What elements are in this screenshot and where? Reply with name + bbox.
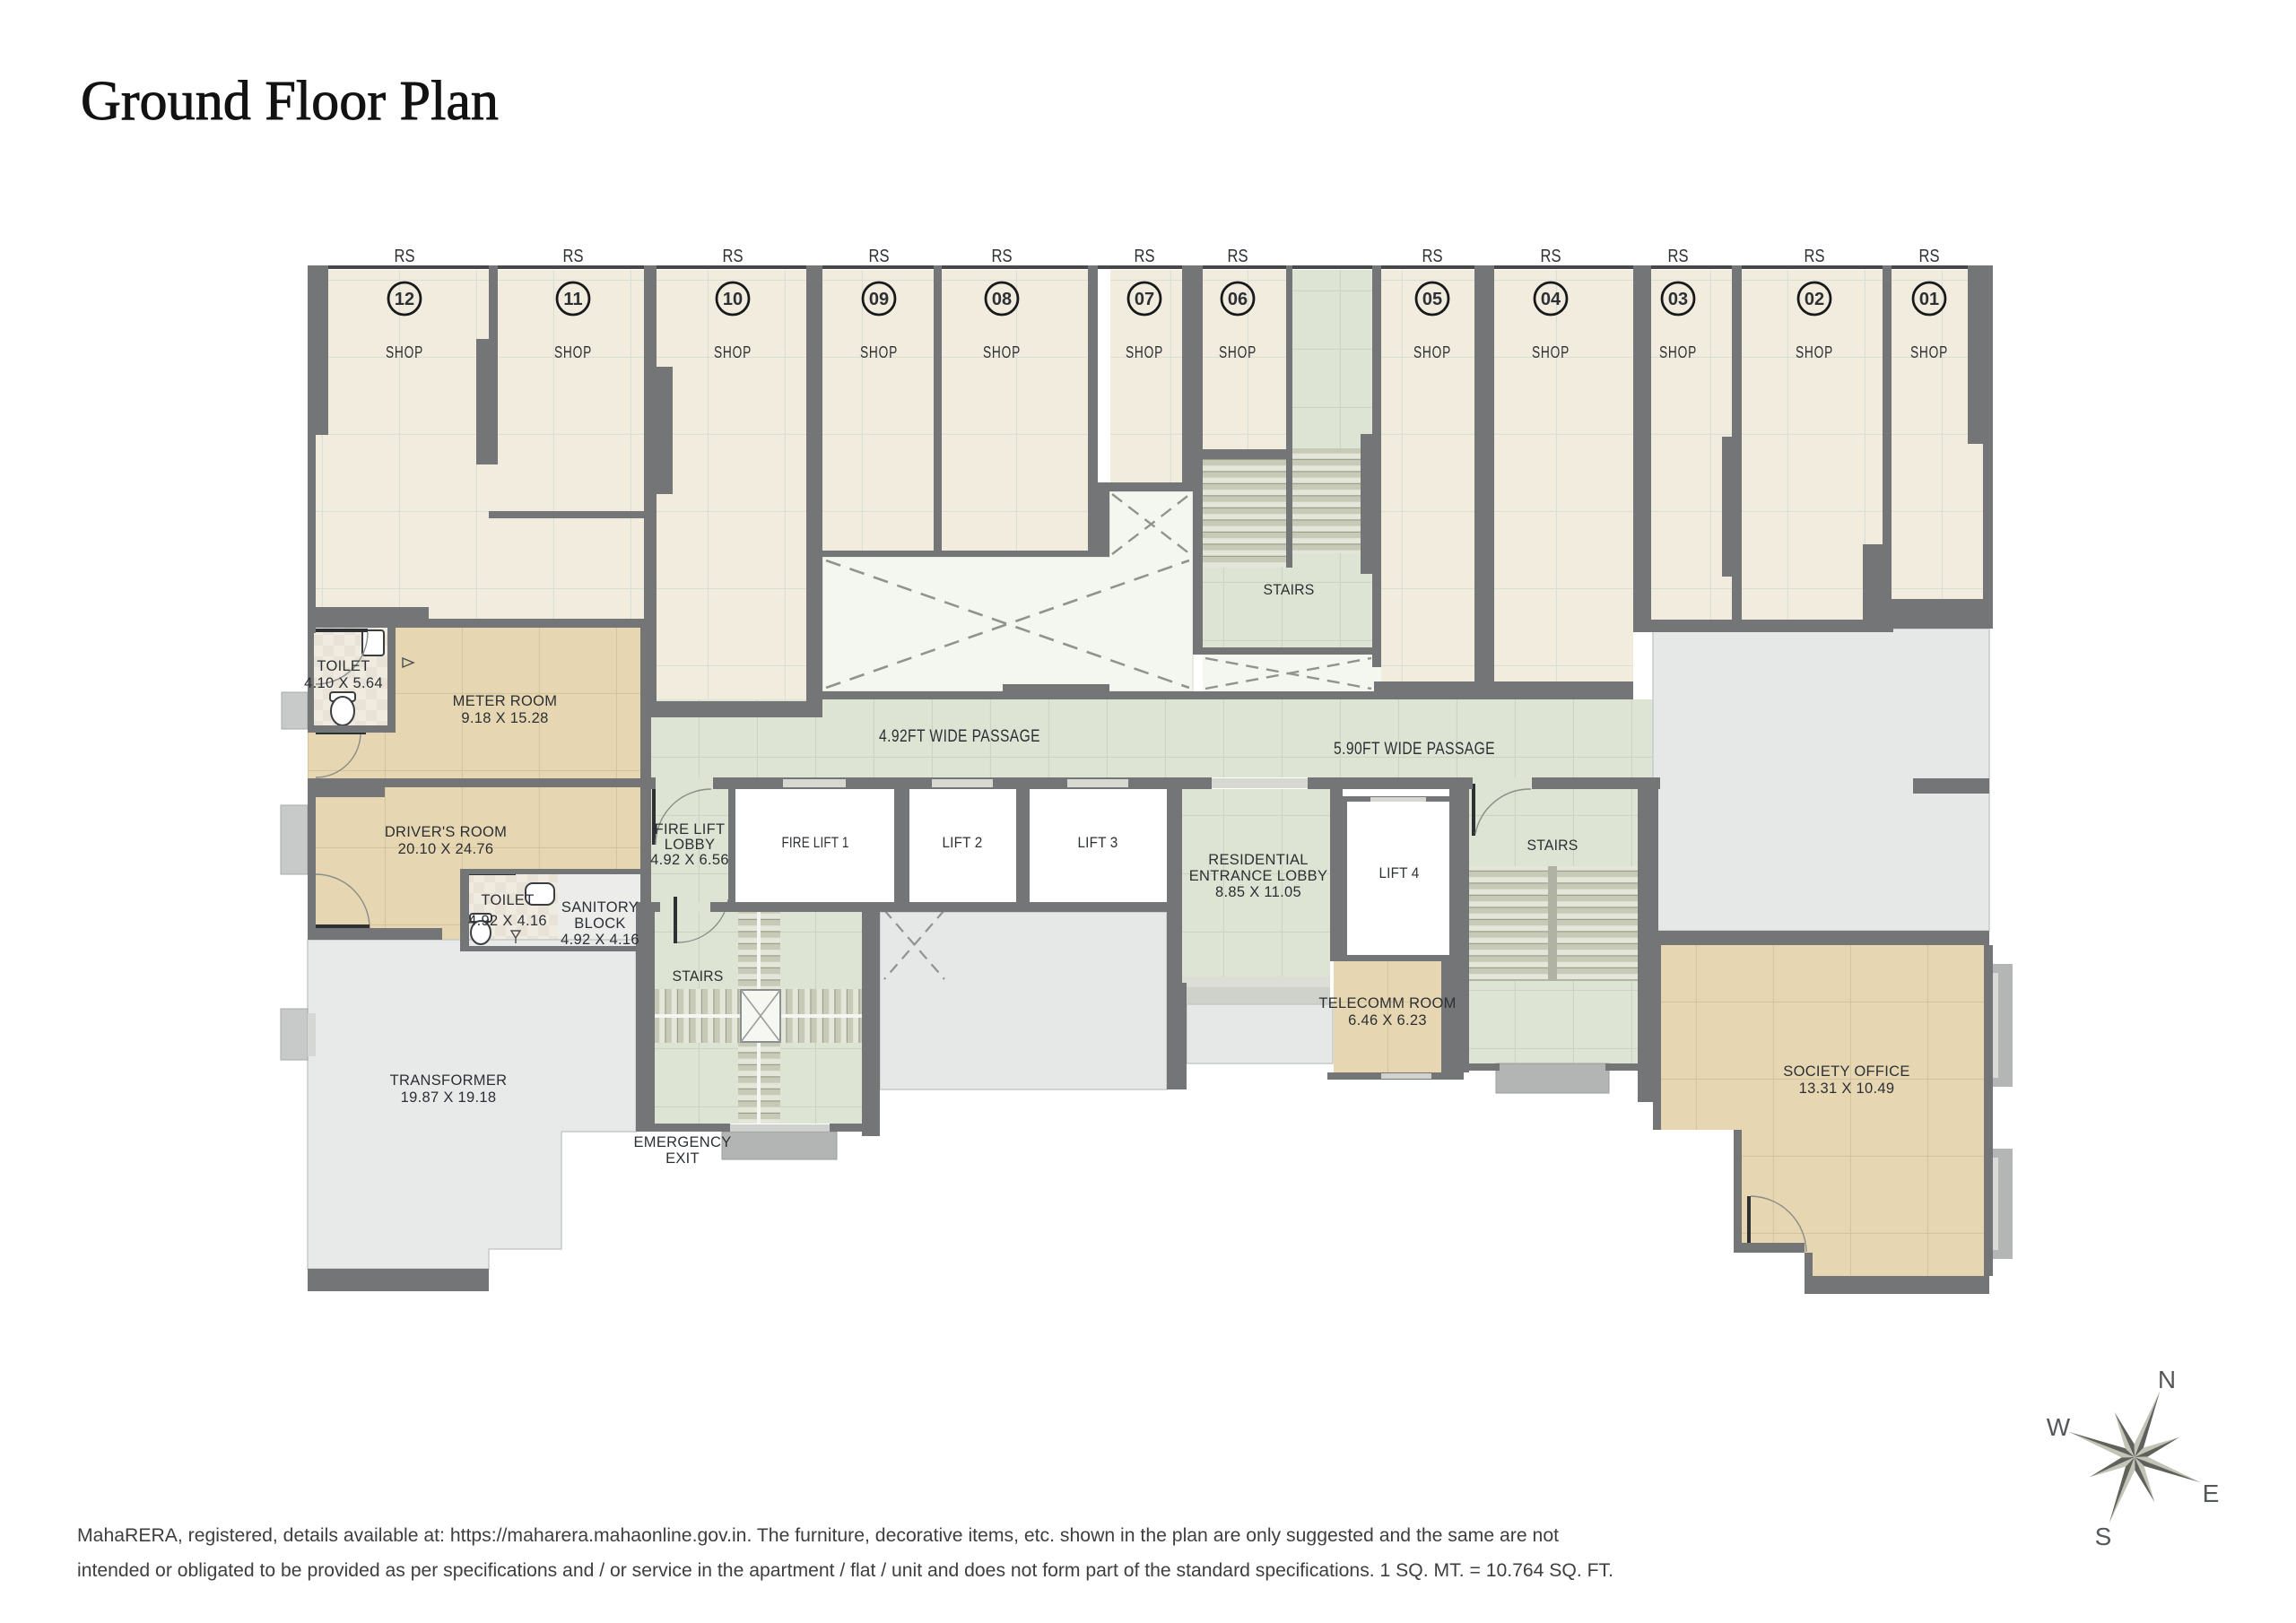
svg-text:S: S xyxy=(2095,1523,2112,1550)
svg-text:19.87 X 19.18: 19.87 X 19.18 xyxy=(401,1089,497,1106)
svg-text:TRANSFORMER: TRANSFORMER xyxy=(390,1072,508,1089)
svg-text:RS: RS xyxy=(1422,247,1443,266)
svg-text:TELECOMM ROOM: TELECOMM ROOM xyxy=(1318,995,1456,1011)
svg-text:RS: RS xyxy=(1668,247,1689,266)
svg-text:RS: RS xyxy=(1135,247,1155,266)
svg-text:SHOP: SHOP xyxy=(386,343,423,361)
svg-text:EXIT: EXIT xyxy=(665,1150,700,1167)
svg-text:RS: RS xyxy=(992,247,1013,266)
svg-text:12: 12 xyxy=(395,290,414,309)
svg-text:SOCIETY OFFICE: SOCIETY OFFICE xyxy=(1783,1063,1909,1080)
svg-text:01: 01 xyxy=(1919,290,1939,309)
svg-text:RS: RS xyxy=(1541,247,1561,266)
svg-text:4.92 X 6.56: 4.92 X 6.56 xyxy=(650,852,729,868)
svg-text:RS: RS xyxy=(869,247,890,266)
svg-text:TOILET: TOILET xyxy=(317,658,370,674)
svg-text:SHOP: SHOP xyxy=(554,343,592,361)
svg-text:SHOP: SHOP xyxy=(1796,343,1833,361)
svg-text:LOBBY: LOBBY xyxy=(665,837,716,853)
svg-text:FIRE LIFT 1: FIRE LIFT 1 xyxy=(782,834,849,851)
svg-text:SHOP: SHOP xyxy=(1413,343,1451,361)
svg-text:SHOP: SHOP xyxy=(1126,343,1163,361)
svg-text:4.92 X 4.16: 4.92 X 4.16 xyxy=(561,932,639,948)
svg-text:RS: RS xyxy=(563,247,584,266)
svg-text:FIRE LIFT: FIRE LIFT xyxy=(655,821,726,838)
svg-text:04: 04 xyxy=(1541,290,1561,309)
svg-text:LIFT 2: LIFT 2 xyxy=(943,834,983,851)
svg-text:09: 09 xyxy=(869,290,889,309)
svg-text:SHOP: SHOP xyxy=(1532,343,1570,361)
svg-text:07: 07 xyxy=(1135,290,1154,309)
svg-text:08: 08 xyxy=(992,290,1012,309)
svg-text:BLOCK: BLOCK xyxy=(574,916,625,932)
svg-text:05: 05 xyxy=(1422,290,1442,309)
svg-text:6.46 X 6.23: 6.46 X 6.23 xyxy=(1348,1012,1427,1028)
svg-text:11: 11 xyxy=(563,290,582,309)
svg-text:METER ROOM: METER ROOM xyxy=(453,693,558,709)
svg-text:13.31 X 10.49: 13.31 X 10.49 xyxy=(1799,1081,1895,1097)
svg-text:ENTRANCE LOBBY: ENTRANCE LOBBY xyxy=(1189,868,1328,884)
svg-text:TOILET: TOILET xyxy=(481,892,534,908)
svg-text:N: N xyxy=(2158,1366,2176,1393)
svg-text:RS: RS xyxy=(1805,247,1825,266)
svg-text:4.10 X 5.64: 4.10 X 5.64 xyxy=(304,675,383,691)
svg-text:4.92FT WIDE PASSAGE: 4.92FT WIDE PASSAGE xyxy=(879,727,1040,746)
svg-text:Ground Floor Plan: Ground Floor Plan xyxy=(81,71,499,132)
svg-text:06: 06 xyxy=(1228,290,1248,309)
svg-text:SHOP: SHOP xyxy=(1659,343,1697,361)
svg-text:STAIRS: STAIRS xyxy=(673,968,724,985)
svg-text:SHOP: SHOP xyxy=(1910,343,1948,361)
svg-text:10: 10 xyxy=(723,290,743,309)
svg-text:RS: RS xyxy=(723,247,744,266)
svg-text:MahaRERA, registered, details: MahaRERA, registered, details available … xyxy=(77,1525,1559,1546)
svg-text:03: 03 xyxy=(1668,290,1688,309)
svg-text:20.10 X 24.76: 20.10 X 24.76 xyxy=(398,841,494,857)
svg-text:STAIRS: STAIRS xyxy=(1527,837,1578,854)
svg-text:9.18 X 15.28: 9.18 X 15.28 xyxy=(461,710,548,726)
svg-text:EMERGENCY: EMERGENCY xyxy=(633,1134,731,1150)
svg-text:SHOP: SHOP xyxy=(983,343,1021,361)
svg-text:intended or obligated to be pr: intended or obligated to be provided as … xyxy=(77,1560,1613,1581)
svg-text:02: 02 xyxy=(1805,290,1824,309)
svg-text:SHOP: SHOP xyxy=(860,343,898,361)
svg-text:5.90FT WIDE PASSAGE: 5.90FT WIDE PASSAGE xyxy=(1334,740,1495,759)
svg-text:RESIDENTIAL: RESIDENTIAL xyxy=(1208,852,1309,868)
svg-text:SHOP: SHOP xyxy=(714,343,752,361)
svg-text:DRIVER'S ROOM: DRIVER'S ROOM xyxy=(385,824,507,840)
svg-text:W: W xyxy=(2047,1413,2071,1441)
svg-text:STAIRS: STAIRS xyxy=(1264,581,1315,598)
svg-text:8.85 X 11.05: 8.85 X 11.05 xyxy=(1215,884,1301,900)
svg-text:SHOP: SHOP xyxy=(1219,343,1257,361)
svg-text:RS: RS xyxy=(395,247,415,266)
svg-text:LIFT 4: LIFT 4 xyxy=(1379,864,1420,881)
svg-text:E: E xyxy=(2203,1480,2220,1507)
svg-text:SANITORY: SANITORY xyxy=(561,899,639,916)
svg-text:LIFT 3: LIFT 3 xyxy=(1078,834,1118,851)
svg-text:RS: RS xyxy=(1919,247,1940,266)
svg-text:4.92 X 4.16: 4.92 X 4.16 xyxy=(468,913,547,929)
svg-text:RS: RS xyxy=(1228,247,1248,266)
